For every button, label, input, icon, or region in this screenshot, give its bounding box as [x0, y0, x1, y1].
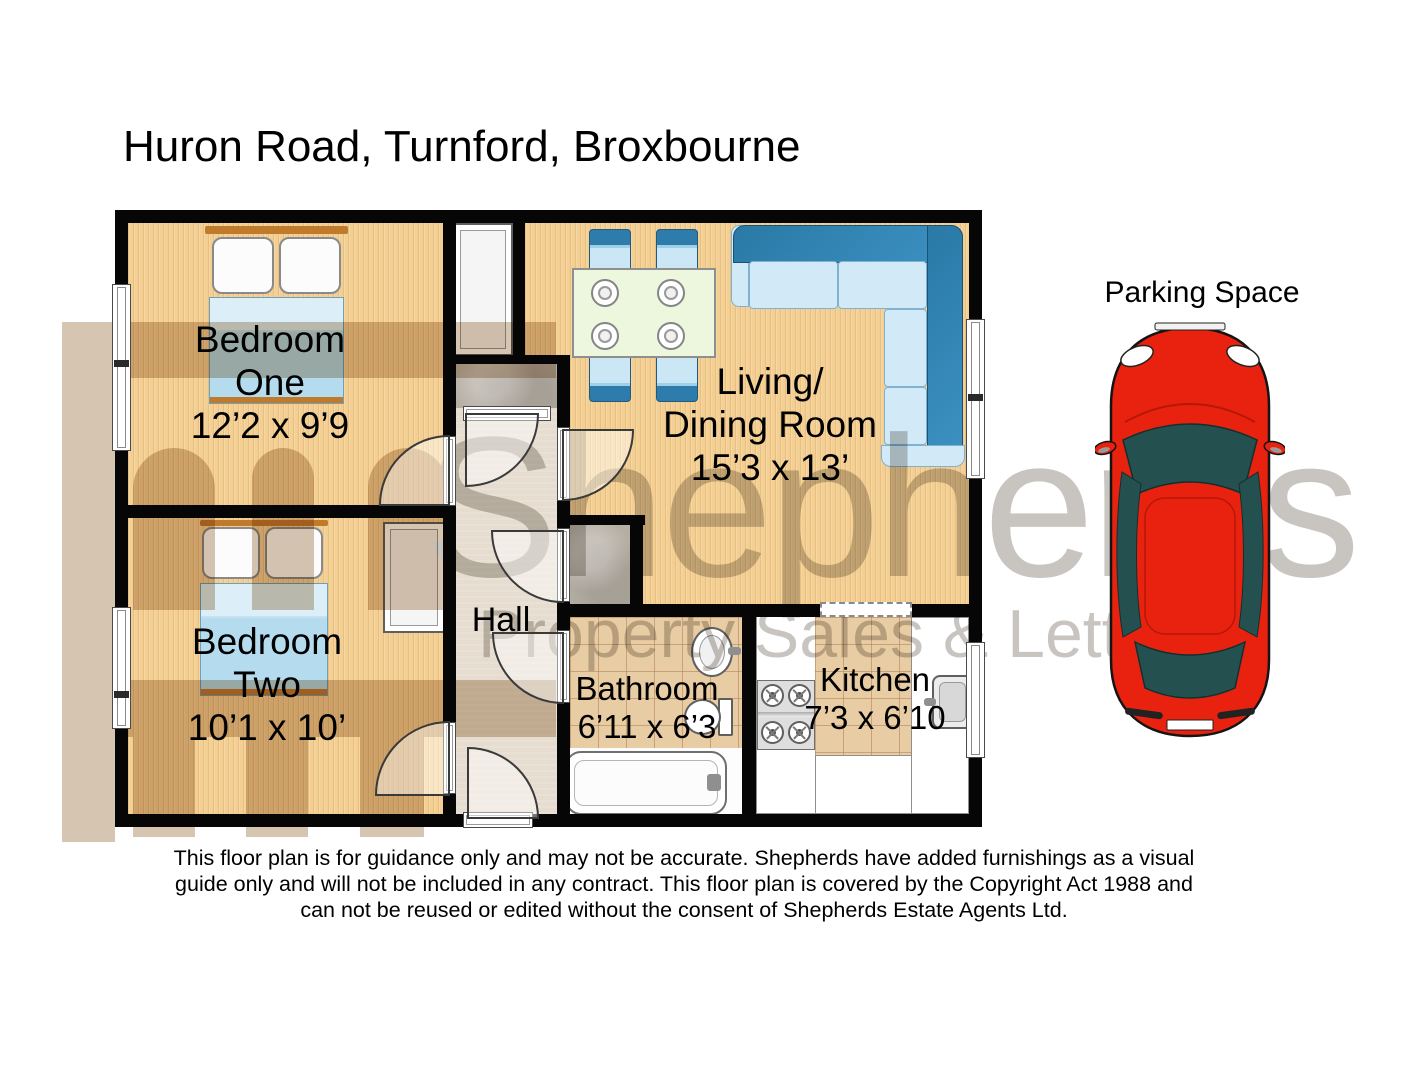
car-license-plate [1167, 720, 1213, 730]
kitchen-label: Kitchen 7’3 x 6’10 [749, 661, 1001, 737]
door-storage-cupboard [463, 406, 551, 421]
window-bedroom-two [112, 607, 131, 729]
bed-two-pillow-right [265, 527, 323, 579]
wall-top [115, 210, 982, 223]
wall-cupboard-bottom [443, 355, 570, 364]
room-name-line: Bedroom [145, 318, 395, 361]
bed-two-headboard [200, 520, 328, 526]
wall-cupboard-right [513, 210, 525, 363]
bed-one-headboard [205, 226, 348, 234]
bed-one-pillow-left [212, 237, 274, 294]
door-bedroom-one [443, 436, 456, 506]
disclaimer: This floor plan is for guidance only and… [130, 845, 1238, 923]
bathtub [565, 751, 727, 815]
window-bedroom-one [112, 284, 131, 451]
room-name-line: Bathroom [521, 670, 773, 708]
wall-bottom [115, 814, 982, 827]
room-dimensions: 6’11 x 6’3 [521, 708, 773, 746]
room-dimensions: 10’1 x 10’ [142, 706, 392, 749]
bed-one-pillow-right [279, 237, 341, 294]
parking-space-label: Parking Space [1078, 276, 1326, 310]
floorplan-page: Huron Road, Turnford, Broxbourne [0, 0, 1423, 1080]
car-illustration [1095, 322, 1285, 742]
hall-storage-cupboard [456, 363, 557, 408]
hall-label: Hall [441, 601, 561, 640]
sofa-seat [838, 261, 927, 309]
room-dimensions: 15’3 x 13’ [645, 446, 895, 489]
door-living-room [557, 427, 570, 501]
bath-tap [707, 774, 721, 791]
room-name-line: Bedroom [142, 620, 392, 663]
sofa-back-right [927, 225, 963, 463]
kitchen-counter-bottom [815, 755, 913, 814]
bedroom-one-label: Bedroom One 12’2 x 9’9 [145, 318, 395, 447]
window-divider [968, 394, 983, 401]
airing-cupboard [453, 223, 513, 356]
bedroom-two-wardrobe [383, 522, 445, 633]
door-closet [557, 528, 570, 602]
door-bedroom-two [443, 722, 456, 794]
page-title: Huron Road, Turnford, Broxbourne [123, 122, 801, 172]
sofa-seat [749, 261, 838, 309]
room-name-line: Two [142, 663, 392, 706]
living-dining-label: Living/ Dining Room 15’3 x 13’ [645, 360, 895, 489]
room-dimensions: 7’3 x 6’10 [749, 699, 1001, 737]
hall-closet [570, 525, 630, 605]
window-divider [114, 691, 129, 698]
bathroom-label: Bathroom 6’11 x 6’3 [521, 670, 773, 746]
room-name-line: One [145, 361, 395, 404]
disclaimer-line: This floor plan is for guidance only and… [130, 845, 1238, 871]
window-divider [114, 360, 129, 367]
basin-tap [728, 647, 741, 655]
shepherds-logo-shape [62, 322, 115, 842]
plate [591, 322, 619, 350]
kitchen-opening [820, 602, 912, 617]
hall-floor [456, 363, 557, 814]
car-top-view [1095, 322, 1285, 742]
room-name-line: Dining Room [645, 403, 895, 446]
room-name-line: Kitchen [749, 661, 1001, 699]
disclaimer-line: guide only and will not be included in a… [130, 871, 1238, 897]
room-dimensions: 12’2 x 9’9 [145, 404, 395, 447]
disclaimer-line: can not be reused or edited without the … [130, 897, 1238, 923]
plate [591, 279, 619, 307]
room-name-line: Living/ [645, 360, 895, 403]
wall-bedroom-divider [115, 505, 456, 518]
front-door [463, 812, 533, 828]
bed-two-pillow-left [202, 527, 260, 579]
bedroom-two-label: Bedroom Two 10’1 x 10’ [142, 620, 392, 749]
wall-closet-right [630, 515, 643, 617]
plate [657, 279, 685, 307]
plate [657, 322, 685, 350]
